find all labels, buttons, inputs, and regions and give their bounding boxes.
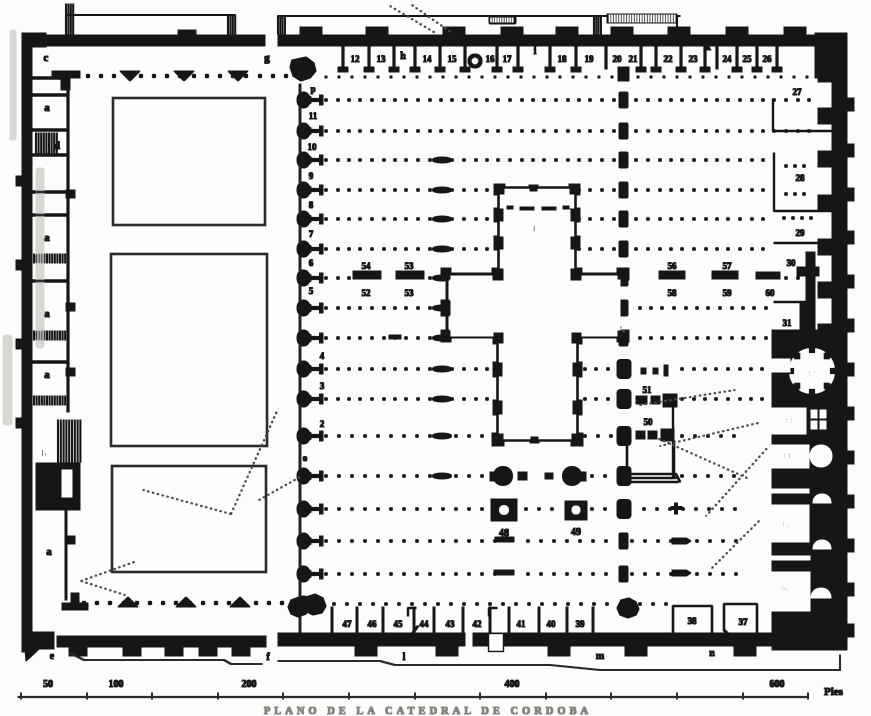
svg-text:9: 9: [309, 171, 314, 181]
svg-text:40: 40: [547, 619, 557, 629]
svg-text:38: 38: [688, 616, 698, 626]
svg-text:32: 32: [807, 369, 817, 379]
svg-text:42: 42: [473, 619, 483, 629]
svg-text:58: 58: [668, 288, 678, 298]
svg-text:23: 23: [689, 54, 699, 64]
svg-text:35: 35: [781, 520, 791, 530]
svg-text:a: a: [44, 102, 50, 114]
svg-text:53: 53: [405, 261, 415, 271]
svg-text:a: a: [44, 369, 50, 381]
svg-text:60: 60: [766, 288, 776, 298]
svg-text:12: 12: [351, 54, 361, 64]
svg-text:2: 2: [320, 419, 325, 429]
svg-text:6: 6: [309, 258, 314, 268]
svg-text:18: 18: [558, 54, 568, 64]
svg-text:5: 5: [309, 286, 314, 296]
svg-text:b: b: [41, 448, 47, 460]
svg-text:o: o: [303, 453, 308, 463]
svg-text:20: 20: [613, 54, 623, 64]
svg-text:g: g: [264, 52, 270, 64]
svg-text:50: 50: [43, 679, 53, 690]
svg-text:33: 33: [784, 416, 794, 426]
svg-text:Pies: Pies: [824, 686, 844, 698]
svg-text:52: 52: [362, 288, 372, 298]
svg-text:l: l: [403, 652, 406, 663]
svg-text:28: 28: [796, 173, 806, 183]
svg-text:11: 11: [309, 111, 318, 121]
svg-text:13: 13: [377, 54, 387, 64]
svg-text:59: 59: [723, 288, 733, 298]
svg-text:e: e: [50, 651, 55, 662]
svg-text:26: 26: [763, 54, 773, 64]
svg-text:3: 3: [320, 381, 325, 391]
svg-text:27: 27: [793, 87, 803, 97]
svg-text:31: 31: [783, 318, 793, 328]
svg-text:16: 16: [486, 54, 496, 64]
svg-text:d: d: [54, 140, 60, 152]
svg-text:43: 43: [446, 619, 456, 629]
svg-text:14: 14: [423, 54, 433, 64]
svg-text:34: 34: [782, 451, 792, 461]
svg-text:45: 45: [394, 619, 404, 629]
svg-text:36: 36: [780, 584, 790, 594]
svg-text:53: 53: [405, 288, 415, 298]
svg-text:10: 10: [308, 142, 318, 152]
svg-text:a: a: [46, 546, 52, 558]
svg-text:51: 51: [643, 385, 653, 395]
svg-text:19: 19: [585, 54, 595, 64]
svg-text:24: 24: [723, 54, 733, 64]
svg-text:17: 17: [503, 54, 513, 64]
svg-text:39: 39: [576, 619, 586, 629]
svg-text:a: a: [44, 232, 50, 244]
svg-text:7: 7: [309, 229, 314, 239]
svg-text:57: 57: [723, 261, 733, 271]
svg-text:200: 200: [242, 679, 257, 690]
svg-text:44: 44: [420, 619, 430, 629]
svg-text:49: 49: [571, 527, 581, 538]
svg-text:400: 400: [505, 679, 520, 690]
svg-text:54: 54: [362, 261, 372, 271]
svg-text:1: 1: [531, 223, 537, 235]
svg-text:a: a: [44, 308, 50, 320]
svg-text:37: 37: [739, 617, 749, 627]
svg-text:8: 8: [309, 200, 314, 210]
svg-text:n: n: [709, 648, 715, 659]
svg-text:46: 46: [368, 619, 378, 629]
svg-text:50: 50: [644, 417, 654, 427]
svg-text:47: 47: [343, 619, 353, 629]
svg-text:22: 22: [664, 54, 674, 64]
svg-text:100: 100: [109, 679, 124, 690]
svg-text:21: 21: [629, 54, 639, 64]
svg-text:m: m: [596, 651, 605, 662]
svg-text:600: 600: [770, 679, 785, 690]
svg-text:25: 25: [743, 54, 753, 64]
svg-text:h: h: [400, 51, 406, 62]
svg-text:30: 30: [787, 258, 797, 268]
svg-text:p: p: [310, 84, 315, 94]
svg-text:41: 41: [517, 619, 527, 629]
svg-text:29: 29: [796, 228, 806, 238]
svg-text:15: 15: [448, 54, 458, 64]
svg-text:k: k: [705, 42, 711, 53]
svg-text:i: i: [534, 46, 537, 57]
svg-text:PLANO DE LA CATEDRAL DE CORDOB: PLANO DE LA CATEDRAL DE CORDOBA: [264, 706, 592, 716]
svg-text:56: 56: [668, 261, 678, 271]
svg-text:4: 4: [320, 351, 325, 361]
svg-text:c: c: [44, 52, 49, 64]
